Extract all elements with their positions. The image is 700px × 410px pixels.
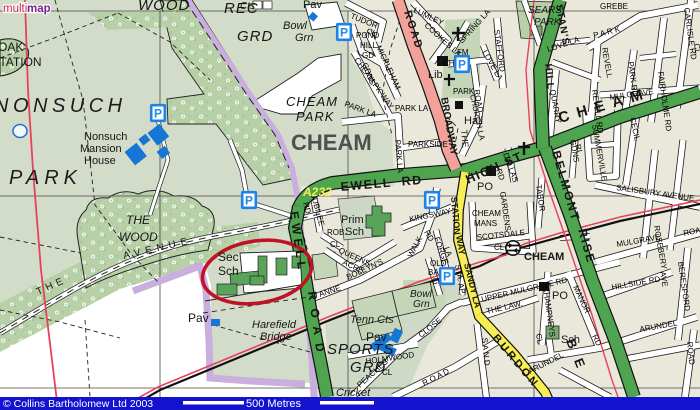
svg-text:P: P bbox=[245, 194, 253, 208]
svg-text:P: P bbox=[340, 26, 348, 40]
svg-text:CHEAM: CHEAM bbox=[524, 251, 564, 263]
svg-text:P: P bbox=[154, 107, 162, 121]
svg-text:THE: THE bbox=[459, 129, 471, 148]
svg-text:Mansion: Mansion bbox=[80, 143, 122, 155]
svg-text:PO: PO bbox=[552, 290, 568, 302]
svg-text:PARKSIDE: PARKSIDE bbox=[408, 140, 448, 149]
svg-text:OLD: OLD bbox=[430, 259, 447, 268]
svg-text:Pav: Pav bbox=[303, 0, 322, 11]
svg-text:PARK: PARK bbox=[453, 87, 475, 96]
svg-text:Nonsuch: Nonsuch bbox=[84, 131, 127, 143]
svg-text:PARK: PARK bbox=[296, 109, 335, 124]
svg-text:PLANTATION: PLANTATION bbox=[0, 55, 42, 69]
svg-text:P: P bbox=[443, 270, 451, 284]
svg-text:GRD: GRD bbox=[237, 28, 273, 45]
svg-text:CHEAM: CHEAM bbox=[472, 209, 501, 218]
svg-text:P: P bbox=[458, 58, 466, 72]
svg-text:OAK: OAK bbox=[0, 40, 23, 54]
svg-text:MANS: MANS bbox=[474, 219, 497, 228]
svg-text:Grn: Grn bbox=[413, 299, 430, 310]
svg-text:Sch: Sch bbox=[218, 264, 239, 278]
svg-text:P: P bbox=[428, 194, 436, 208]
svg-text:© Collins Bartholomew Ltd 2003: © Collins Bartholomew Ltd 2003 bbox=[3, 398, 153, 410]
svg-text:Sec: Sec bbox=[218, 250, 239, 264]
svg-text:Grn: Grn bbox=[295, 32, 313, 44]
svg-text:map: map bbox=[27, 3, 51, 15]
svg-text:NONSUCH: NONSUCH bbox=[0, 95, 127, 117]
svg-text:Harefield: Harefield bbox=[252, 319, 297, 331]
svg-text:CHEAM: CHEAM bbox=[286, 94, 338, 109]
svg-text:ROB.: ROB. bbox=[327, 228, 347, 237]
svg-text:Pav: Pav bbox=[188, 311, 209, 325]
svg-text:Bowl: Bowl bbox=[283, 20, 307, 32]
svg-text:Cts: Cts bbox=[240, 1, 255, 12]
svg-text:CL: CL bbox=[494, 243, 505, 252]
svg-text:Bridge: Bridge bbox=[260, 331, 292, 343]
svg-text:GREBE: GREBE bbox=[600, 2, 628, 11]
svg-text:Tenn Cts: Tenn Cts bbox=[350, 314, 394, 326]
svg-text:House: House bbox=[84, 155, 116, 167]
svg-text:GD: GD bbox=[362, 51, 374, 60]
svg-text:PO: PO bbox=[477, 181, 493, 193]
svg-text:PARK: PARK bbox=[9, 167, 82, 189]
svg-text:POND: POND bbox=[356, 31, 379, 40]
svg-text:Pav: Pav bbox=[366, 330, 387, 344]
svg-text:multi: multi bbox=[3, 3, 27, 15]
svg-text:500 Metres: 500 Metres bbox=[246, 398, 302, 410]
svg-text:WOOD: WOOD bbox=[138, 0, 190, 14]
svg-text:CL: CL bbox=[382, 368, 393, 377]
svg-text:PARK LA: PARK LA bbox=[395, 104, 429, 113]
svg-text:WOOD: WOOD bbox=[119, 230, 158, 244]
svg-text:CHEAM: CHEAM bbox=[291, 130, 372, 155]
svg-text:Lib: Lib bbox=[428, 69, 443, 81]
svg-text:THE: THE bbox=[126, 213, 151, 227]
svg-text:Prim: Prim bbox=[341, 214, 364, 226]
svg-text:Sch: Sch bbox=[345, 226, 364, 238]
svg-text:A232: A232 bbox=[302, 185, 332, 199]
